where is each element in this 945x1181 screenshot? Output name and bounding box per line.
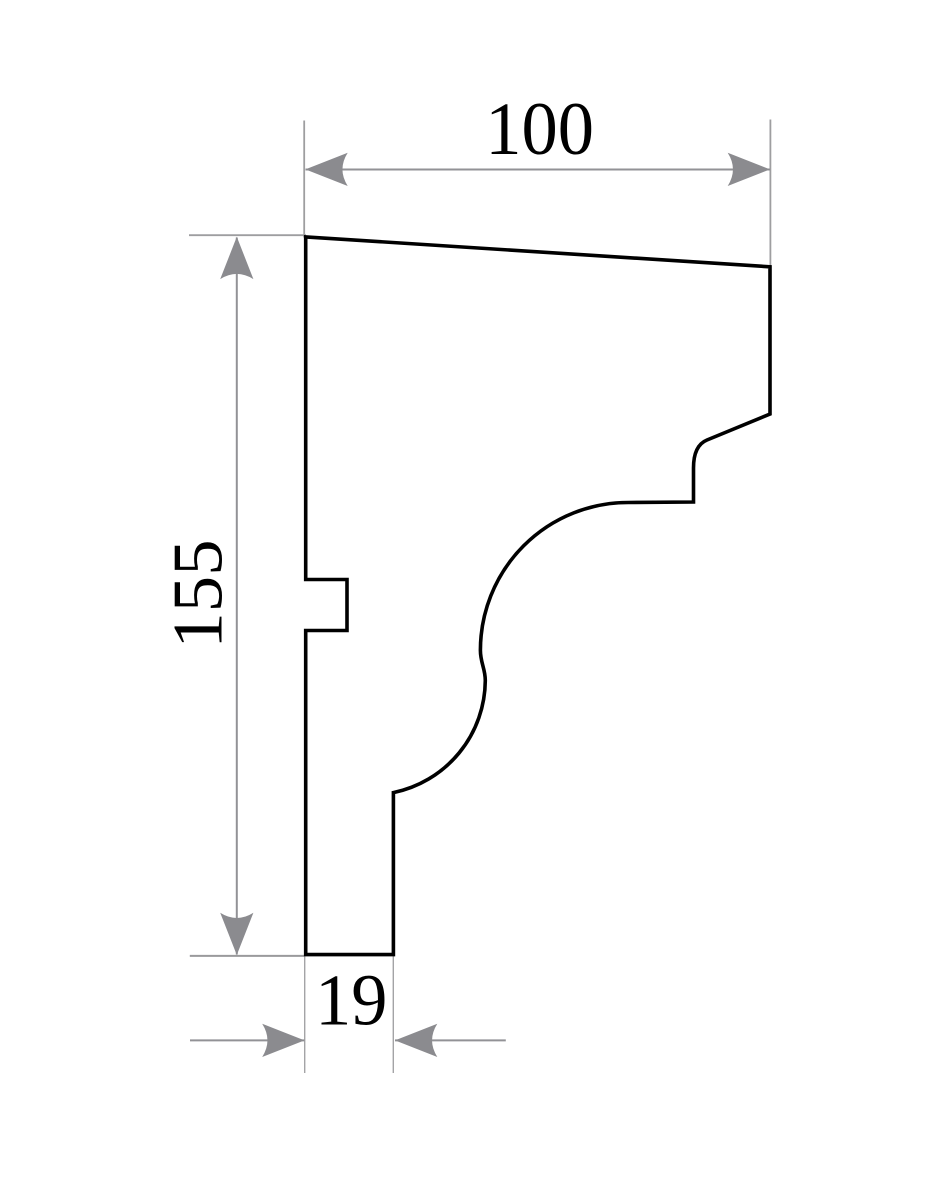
svg-text:100: 100 [485, 88, 594, 171]
svg-text:155: 155 [159, 539, 237, 648]
svg-text:19: 19 [315, 959, 387, 1040]
